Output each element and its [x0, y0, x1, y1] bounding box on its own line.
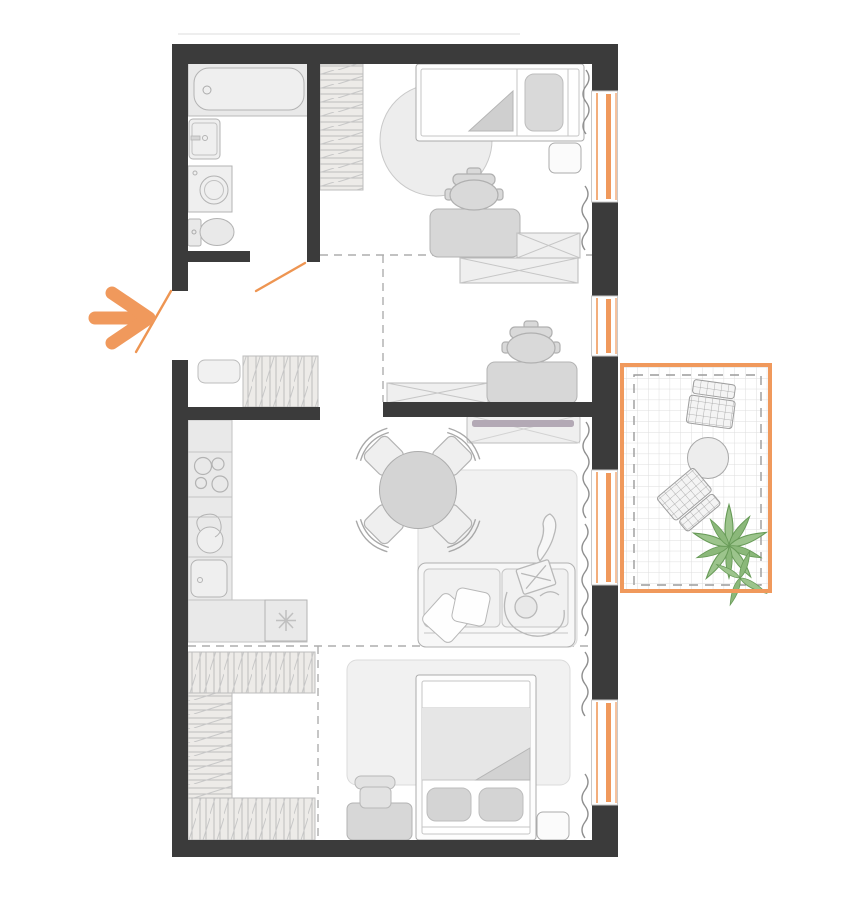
floor-plan-canvas [0, 0, 852, 900]
bathroom-door-swing [256, 263, 305, 291]
bathtub [188, 62, 310, 116]
storage-box [517, 233, 580, 258]
workspace-nook [387, 321, 577, 404]
refrigerator [265, 600, 307, 641]
desk [430, 209, 520, 257]
wall-living-north [383, 402, 592, 417]
round-dining-table [380, 452, 457, 529]
window-2 [592, 296, 618, 356]
wicker-chair [686, 379, 738, 429]
bench [198, 360, 240, 383]
desk [487, 362, 577, 404]
hall-wardrobe [243, 356, 318, 407]
bathroom [188, 62, 310, 246]
storage-box [460, 258, 578, 283]
wall-right-4 [592, 585, 618, 700]
window-4 [592, 700, 618, 805]
wardrobe-bottom [188, 798, 315, 840]
office-chair [502, 321, 560, 363]
chair [355, 776, 395, 808]
square-sink [191, 560, 227, 597]
wall-right-3 [592, 356, 618, 470]
nightstand [537, 812, 569, 840]
wall-bathroom-south [172, 251, 250, 262]
floor-plan [0, 0, 852, 900]
door-swings [136, 263, 305, 352]
tv-console [467, 415, 580, 443]
curtains [582, 70, 589, 838]
bedroom-top [320, 64, 584, 283]
desk [347, 803, 412, 840]
window-3-balcony-door [592, 470, 618, 585]
wardrobe-left [188, 693, 232, 798]
wardrobe-top [188, 652, 315, 693]
wall-left-lower [172, 360, 188, 857]
single-bed [416, 64, 584, 141]
double-bed [416, 675, 536, 840]
tv [472, 420, 574, 427]
pillow [427, 788, 471, 821]
window-1 [592, 91, 618, 202]
washing-machine [188, 166, 232, 212]
throw-pillow [451, 587, 491, 627]
pillow [479, 788, 523, 821]
wall-bathroom-east [307, 64, 320, 262]
hallway [198, 356, 318, 407]
wall-right-2 [592, 202, 618, 296]
walk-in-closet [188, 652, 315, 840]
toilet [188, 219, 234, 247]
pillow [525, 74, 563, 131]
wall-hall-south [172, 407, 320, 420]
nightstand [549, 143, 581, 173]
wall-right-1 [592, 64, 618, 91]
living-room [352, 415, 580, 647]
kitchen [188, 420, 307, 642]
low-storage-box [387, 383, 488, 403]
wardrobe [320, 64, 363, 190]
snowflake-icon [276, 610, 296, 631]
wall-top [172, 44, 618, 64]
wall-bottom [172, 840, 618, 857]
wall-right-5 [592, 805, 618, 845]
entrance-arrow-icon [95, 293, 149, 343]
washbasin [189, 119, 220, 159]
bedroom-bottom [347, 660, 570, 840]
balcony [622, 365, 770, 606]
